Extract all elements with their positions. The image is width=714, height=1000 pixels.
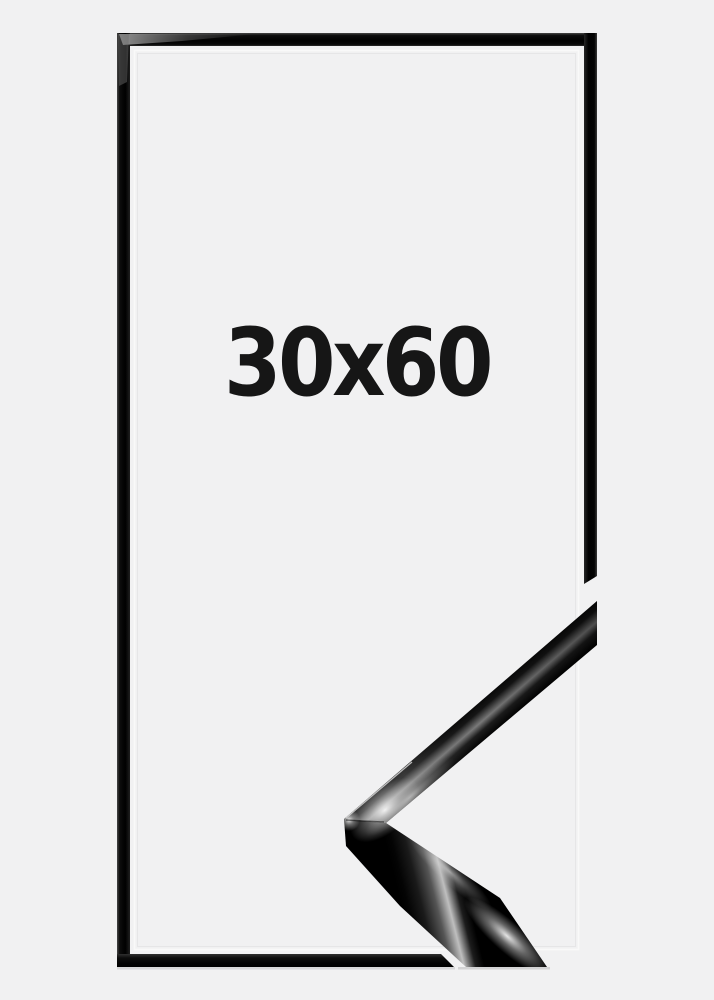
corner-sample-shadow bbox=[458, 967, 550, 970]
frame-bottom-shadow bbox=[117, 967, 455, 970]
frame-left-bar bbox=[117, 33, 130, 967]
frame-size-label: 30x60 bbox=[43, 309, 671, 419]
frame-graphic bbox=[0, 0, 714, 1000]
frame-product-image: 30x60 bbox=[0, 0, 714, 1000]
frame-bottom-bar bbox=[117, 954, 454, 967]
frame-corner-sample-image bbox=[338, 601, 597, 985]
